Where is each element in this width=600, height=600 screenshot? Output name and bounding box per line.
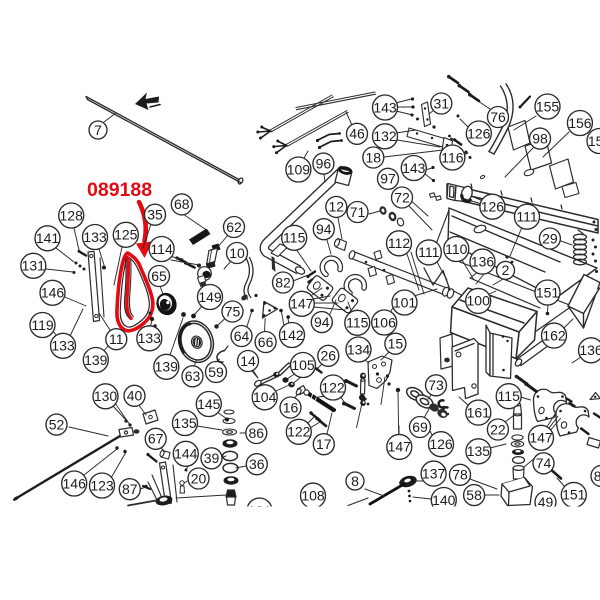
svg-text:162: 162 [542,327,566,343]
svg-text:155: 155 [536,98,560,114]
svg-text:82: 82 [275,274,291,290]
svg-text:126: 126 [467,125,491,141]
svg-text:126: 126 [429,436,453,452]
svg-text:145: 145 [197,396,221,412]
svg-text:122: 122 [287,424,311,440]
svg-text:109: 109 [287,161,311,177]
svg-text:139: 139 [84,352,108,368]
svg-text:156: 156 [568,115,592,131]
svg-text:141: 141 [36,230,60,246]
svg-text:101: 101 [393,294,417,310]
svg-text:144: 144 [174,446,198,462]
svg-text:35: 35 [147,207,163,223]
svg-text:134: 134 [347,341,371,357]
svg-text:135: 135 [467,443,491,459]
svg-text:119: 119 [31,317,54,333]
svg-text:12: 12 [329,199,345,215]
svg-text:14: 14 [240,353,256,369]
svg-text:137: 137 [422,465,446,481]
svg-text:29: 29 [542,230,558,246]
svg-text:74: 74 [536,455,552,471]
svg-text:78: 78 [452,467,468,483]
svg-text:114: 114 [150,241,173,257]
svg-text:104: 104 [253,389,277,405]
svg-text:106: 106 [373,314,397,330]
svg-text:46: 46 [349,126,365,142]
svg-text:69: 69 [412,419,428,435]
svg-text:8: 8 [351,473,359,489]
svg-text:112: 112 [388,235,411,251]
svg-text:147: 147 [388,439,412,455]
svg-text:157: 157 [588,133,600,149]
svg-text:73: 73 [428,377,444,393]
svg-text:143: 143 [373,99,397,115]
svg-text:132: 132 [373,128,397,144]
svg-text:123: 123 [90,477,114,493]
svg-text:136: 136 [471,253,495,269]
svg-text:66: 66 [258,334,274,350]
svg-text:84: 84 [594,468,600,484]
svg-text:133: 133 [51,338,75,354]
svg-text:86: 86 [249,425,265,441]
svg-text:36: 36 [249,456,265,472]
svg-text:40: 40 [127,388,143,404]
svg-text:143: 143 [402,160,426,176]
svg-text:31: 31 [434,95,450,111]
svg-text:149: 149 [198,289,222,305]
svg-text:22: 22 [490,421,506,437]
svg-text:65: 65 [151,268,167,284]
svg-text:139: 139 [155,359,179,375]
svg-text:115: 115 [498,388,521,404]
svg-text:18: 18 [366,149,382,165]
svg-text:72: 72 [394,189,410,205]
svg-text:146: 146 [63,475,87,491]
svg-text:136: 136 [579,342,600,358]
svg-text:089188: 089188 [87,179,152,201]
svg-text:96: 96 [316,155,332,171]
svg-text:94: 94 [316,221,332,237]
svg-text:147: 147 [529,430,553,446]
svg-text:75: 75 [225,303,241,319]
svg-text:151: 151 [536,284,560,300]
svg-text:68: 68 [174,196,190,212]
svg-text:126: 126 [481,199,505,215]
svg-text:140: 140 [432,492,456,508]
svg-text:52: 52 [49,416,65,432]
svg-text:11: 11 [109,331,124,347]
svg-text:98: 98 [532,130,548,146]
svg-text:128: 128 [60,207,84,223]
svg-text:111: 111 [418,244,439,260]
svg-text:20: 20 [191,470,207,486]
svg-text:115: 115 [283,230,306,246]
svg-text:122: 122 [321,379,345,395]
svg-text:71: 71 [350,204,366,220]
svg-text:161: 161 [467,404,491,420]
svg-text:133: 133 [138,330,162,346]
svg-text:147: 147 [290,296,314,312]
svg-text:2: 2 [502,262,510,278]
svg-text:115: 115 [346,315,369,331]
svg-text:125: 125 [114,227,138,243]
svg-text:111: 111 [516,209,537,225]
svg-text:7: 7 [94,122,102,138]
svg-text:67: 67 [148,431,164,447]
svg-text:146: 146 [41,285,65,301]
svg-text:110: 110 [445,241,468,257]
svg-text:62: 62 [226,219,242,235]
svg-text:16: 16 [283,399,299,415]
svg-text:76: 76 [490,109,506,125]
svg-text:87: 87 [122,481,138,497]
svg-text:58: 58 [466,487,482,503]
svg-text:151: 151 [562,487,586,503]
svg-text:97: 97 [380,171,396,187]
svg-text:116: 116 [441,149,464,165]
svg-text:39: 39 [204,450,220,466]
svg-text:94: 94 [314,314,330,330]
svg-text:108: 108 [301,487,325,503]
svg-text:133: 133 [83,229,107,245]
svg-text:15: 15 [388,336,404,352]
svg-text:105: 105 [291,357,315,373]
svg-text:135: 135 [173,415,197,431]
svg-text:131: 131 [22,258,46,274]
svg-text:26: 26 [321,348,337,364]
svg-text:63: 63 [185,368,201,384]
svg-text:130: 130 [94,388,118,404]
svg-text:59: 59 [208,364,224,380]
svg-text:142: 142 [280,327,304,343]
svg-text:64: 64 [234,328,250,344]
svg-text:100: 100 [467,293,491,309]
svg-text:10: 10 [229,245,245,261]
svg-text:17: 17 [316,436,332,452]
